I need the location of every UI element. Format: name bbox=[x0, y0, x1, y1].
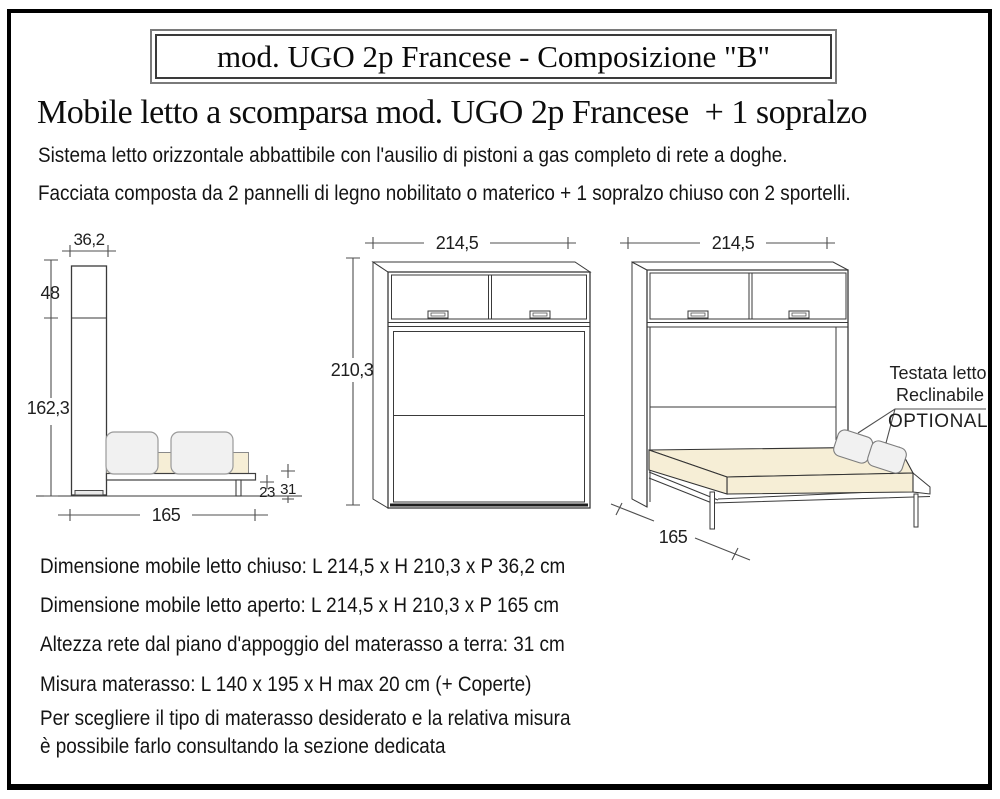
side-view-drawing: 36,2 48 162,3 165 23 31 bbox=[27, 230, 302, 525]
open-view-drawing: Testata letto Reclinabile OPTIONAL 214,5… bbox=[611, 233, 988, 560]
front-view-drawing: 214,5 210,3 bbox=[331, 233, 590, 508]
spec-sheet-page: mod. UGO 2p Francese - Composizione "B" … bbox=[0, 0, 1000, 799]
spec-closed-dimensions: Dimensione mobile letto chiuso: L 214,5 … bbox=[40, 555, 565, 579]
front-cabinet-top-face bbox=[373, 262, 590, 272]
dim-sopralzo-height: 48 bbox=[40, 283, 60, 303]
headboard-label-line1: Testata letto bbox=[889, 363, 986, 383]
side-pillow-left bbox=[106, 432, 158, 474]
side-cabinet bbox=[72, 266, 107, 495]
side-pillow-right bbox=[171, 432, 233, 474]
open-mattress-front bbox=[727, 473, 913, 494]
spec-rete-height: Altezza rete dal piano d'appoggio del ma… bbox=[40, 633, 565, 657]
dim-body-height: 162,3 bbox=[27, 398, 70, 418]
headboard-label-line2: Reclinabile bbox=[896, 385, 984, 405]
side-bed-leg bbox=[236, 480, 241, 496]
open-cabinet-top-face bbox=[632, 262, 848, 270]
dim-front-width: 214,5 bbox=[436, 233, 479, 253]
dim-open-depth: 165 bbox=[659, 527, 688, 547]
dim-line-front-height bbox=[346, 258, 360, 505]
note-line-1: Per scegliere il tipo di materasso desid… bbox=[40, 707, 570, 731]
dim-open-width: 214,5 bbox=[712, 233, 755, 253]
dim-rete-height: 31 bbox=[280, 481, 296, 498]
spec-open-dimensions: Dimensione mobile letto aperto: L 214,5 … bbox=[40, 594, 559, 618]
headboard-label-optional: OPTIONAL bbox=[888, 411, 988, 432]
open-bed-leg-right bbox=[914, 494, 918, 527]
note-line-2: è possibile farlo consultando la sezione… bbox=[40, 735, 446, 759]
spec-mattress-size: Misura materasso: L 140 x 195 x H max 20… bbox=[40, 673, 531, 697]
open-cabinet-side-face bbox=[632, 262, 647, 507]
open-platform-right-end bbox=[913, 473, 930, 494]
dim-depth-closed: 36,2 bbox=[73, 230, 104, 249]
dim-depth-open: 165 bbox=[152, 505, 181, 525]
dim-front-height: 210,3 bbox=[331, 360, 374, 380]
dim-platform-height: 23 bbox=[259, 484, 275, 501]
open-sopralzo-frame bbox=[650, 273, 846, 319]
front-cabinet-side-face bbox=[373, 262, 388, 508]
open-sopralzo-bottom-edge bbox=[647, 323, 848, 328]
side-cabinet-base bbox=[75, 491, 103, 496]
open-bed-leg-left bbox=[710, 492, 715, 529]
